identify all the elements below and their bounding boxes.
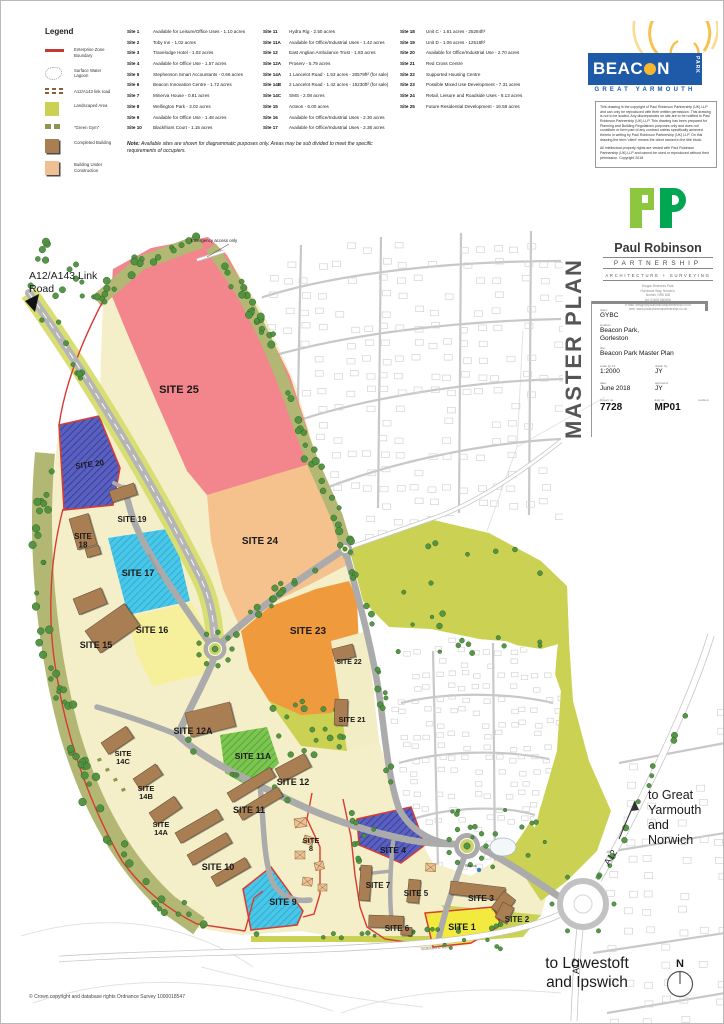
legend-item-label: A12/A143 link road [74,88,110,95]
beacon-park-logo: BEACN PARK GREAT YARMOUTH [586,21,718,101]
map-label: A12/A143 Link [29,270,98,282]
site-list-row: Site 10Blackfriars Court - 1.15 acres [127,125,259,136]
site-id: Site 12A [263,61,289,66]
site-desc: Available for Office/Industrial Uses - 1… [289,40,397,45]
legend-item-label: Landscaped Area [74,102,107,109]
map-label: SITE 19 [118,515,147,524]
map-label: SITE 23 [290,626,327,637]
legend-item-label: Surface Water Lagoon [74,67,101,80]
map-label: SITE 7 [366,881,391,890]
map-label: SITE14C [115,749,132,766]
beacon-great-yarmouth: GREAT YARMOUTH [588,87,702,93]
site-desc: SMS - 2.08 acres [289,93,397,98]
site-desc: Available for Office Use - 1.48 acres [153,115,259,120]
title-block: client: GYBC location: Beacon Park, Gorl… [591,301,718,437]
site-id: Site 21 [400,61,426,66]
legend-swatch-green-gym [45,124,67,129]
site-id: Site 5 [127,72,153,77]
map-label: SITE 15 [80,640,113,650]
site-list-column-3: Site 18Unit C - 1.61 acres - 25284ft²Sit… [400,29,552,115]
legend-swatch-lagoon [45,67,67,80]
site-id: Site 20 [400,50,426,55]
map-label: and Ipswich [546,974,628,991]
map-label: SITE 10 [202,862,235,872]
map-label: Beacon [465,864,477,868]
site-list-row: Site 14CSMS - 2.08 acres [263,93,397,104]
beacon-logo-box: BEACN PARK [588,53,702,85]
site-desc: Available for Office/Industrial Uses - 2… [289,125,397,130]
drawing-side-title: MASTER PLAN [561,295,585,439]
site-desc: Wellington Park - 3.02 acres [153,104,259,109]
title-block-bar [592,301,708,304]
site-list-row: Site 23Possible Mixed Use Development - … [400,82,552,93]
sun-icon [644,63,656,75]
site-list-row: Site 24Retail, Leisure and Roadside Uses… [400,93,552,104]
site-list-row: Site 12East Anglian Ambulance Trust - 1.… [263,50,397,61]
legend-swatch-construction [45,161,67,175]
map-label: SITE 2 [505,915,530,924]
site-list-row: Site 16Available for Office/Industrial U… [263,115,397,126]
map-label: SITE 4 [380,845,406,855]
site-id: Site 24 [400,93,426,98]
beacon-park-vertical: PARK [694,56,700,74]
site-id: Site 15 [263,104,289,109]
prp-tagline: ARCHITECTURE + SURVEYING [603,271,713,281]
map-label: SITE 21 [338,715,365,724]
site-desc: Unit C - 1.61 acres - 25284ft² [426,29,552,34]
date-value: June 2018 [600,385,655,393]
map-label: to Great [648,788,694,802]
site-list-row: Site 15Acteon - 6.00 acres [263,104,397,115]
os-copyright: © Crown copyright and database rights Or… [29,994,185,1000]
scale-value: 1:2000 [600,368,655,376]
site-list-row: Site 19Unit D - 1.06 acres - 12518ft² [400,40,552,51]
legend-item-label: Enterprise Zone Boundary [74,46,105,59]
site-list-note: Note: Available sites are shown for diag… [127,141,387,155]
site-list-row: Site 6Beacon Innovation Centre - 1.72 ac… [127,82,259,93]
site-desc: Retail, Leisure and Roadside Uses - 8.13… [426,93,552,98]
legend-item: Building Under Construction [45,161,195,175]
legend-item-label: Building Under Construction [74,161,102,174]
map-label: SITE 11 [233,805,265,815]
site-id: Site 14A [263,72,289,77]
site-desc: Future Residential Development - 16.58 a… [426,104,552,109]
site-desc: Travelodge Hotel - 1.02 acres [153,50,259,55]
site-list-row: Site 8Wellington Park - 3.02 acres [127,104,259,115]
prp-monogram-icon [597,185,719,233]
site-id: Site 11A [263,40,289,45]
site-list-column-1: Site 1Available for Leisure/Office Uses … [127,29,259,136]
site-list-row: Site 4Available for Office Use - 1.57 ac… [127,61,259,72]
map-label: SITE14A [153,820,170,837]
site-id: Site 19 [400,40,426,45]
site-id: Site 4 [127,61,153,66]
title-value: Beacon Park Master Plan [600,350,718,358]
legend-swatch-landscaped [45,102,67,116]
site-desc: Blackfriars Court - 1.15 acres [153,125,259,130]
map-label: SITE 17 [122,568,155,578]
site-desc: Possible Mixed Use Development - 7.31 ac… [426,82,552,87]
map-label: SITE 9 [269,897,297,907]
site-id: Site 6 [127,82,153,87]
beacon-name-1: BEAC [593,59,643,79]
legend-swatch-link-road [45,88,67,94]
map-label: Yarmouth [648,803,701,817]
master-plan-sheet: SITE 25SITE 24SITE 23SITE 20SITE 17SITE … [0,0,724,1024]
site-list-row: Site 11Hydra Rig - 2.50 acres [263,29,397,40]
site-id: Site 12 [263,50,289,55]
site-list-row: Site 11AAvailable for Office/Industrial … [263,40,397,51]
site-desc: East Anglian Ambulance Trust - 1.83 acre… [289,50,397,55]
site-desc: Minerva House - 0.81 acres [153,93,259,98]
site-list-row: Site 2Toby Inn - 1.02 acres [127,40,259,51]
site-id: Site 7 [127,93,153,98]
site-id: Site 9 [127,115,153,120]
map-label: SITE 16 [136,625,169,635]
site-list-row: Site 22Supported Housing Centre [400,72,552,83]
site-desc: Proserv - 5.79 acres [289,61,397,66]
map-label: SITE 11A [235,751,271,761]
beacon-name-2: N [657,59,670,79]
site-id: Site 23 [400,82,426,87]
legend-item-label: "Green Gym" [74,124,99,131]
site-desc: 2 Lancelot Road - 1.42 acres - 15230ft² … [289,82,397,87]
map-label: Norwich [648,833,693,847]
map-label: SITE 5 [404,889,429,898]
approved-value: JY [655,385,699,393]
site-list-row: Site 12AProserv - 5.79 acres [263,61,397,72]
copyright-notice-box: This drawing is the copyright of Paul Ro… [595,101,717,168]
site-id: Site 22 [400,72,426,77]
map-label: SITE 3 [468,893,494,903]
site-desc: Toby Inn - 1.02 acres [153,40,259,45]
site-list-row: Site 20Available for Office/Industrial U… [400,50,552,61]
site-id: Site 11 [263,29,289,34]
site-desc: Supported Housing Centre [426,72,552,77]
project-no-value: 7728 [600,402,655,413]
paul-robinson-partnership-logo: Paul Robinson PARTNERSHIP ARCHITECTURE +… [597,185,719,312]
site-id: Site 2 [127,40,153,45]
map-label: SITE14B [138,784,155,801]
drawn-by-value: JY [655,368,699,376]
map-label: Emergency access only [191,238,238,243]
map-label: SITE 12A [173,726,213,736]
site-desc: Available for Office Use - 1.57 acres [153,61,259,66]
site-desc: Stephenson Smart Accountants - 0.66 acre… [153,72,259,77]
site-id: Site 17 [263,125,289,130]
site-desc: Red Cross Centre [426,61,552,66]
legend-swatch-ez-line [45,46,67,52]
legend-swatch-completed [45,139,67,153]
note-bold: Note: [127,141,140,147]
legend-item-label: Completed Building [74,139,111,146]
site-id: Site 16 [263,115,289,120]
map-label: SITE 12 [277,777,310,787]
site-desc: Hydra Rig - 2.50 acres [289,29,397,34]
note-text: Available sites are shown for diagrammat… [127,141,373,154]
location-value-2: Gorleston [600,335,718,343]
site-list-column-2: Site 11Hydra Rig - 2.50 acresSite 11AAva… [263,29,397,136]
client-value: GYBC [600,312,718,320]
map-label: N [676,958,684,970]
site-desc: Available for Office/Industrial Use - 2.… [426,50,552,55]
map-label: SITE 6 [385,924,410,933]
prp-name: Paul Robinson [597,241,719,255]
site-id: Site 14C [263,93,289,98]
site-list-row: Site 9Available for Office Use - 1.48 ac… [127,115,259,126]
prp-partnership: PARTNERSHIP [603,257,713,269]
site-id: Site 10 [127,125,153,130]
dwg-no-value: MP01 [655,402,699,413]
site-id: Site 14B [263,82,289,87]
site-list-row: Site 5Stephenson Smart Accountants - 0.6… [127,72,259,83]
site-list-row: Site 18Unit C - 1.61 acres - 25284ft² [400,29,552,40]
site-id: Site 18 [400,29,426,34]
site-desc: Available for Office/Industrial Uses - 2… [289,115,397,120]
site-id: Site 25 [400,104,426,109]
site-desc: Acteon - 6.00 acres [289,104,397,109]
site-id: Site 1 [127,29,153,34]
location-value-1: Beacon Park, [600,327,718,335]
map-label: SITE 24 [242,536,279,547]
site-list-row: Site 7Minerva House - 0.81 acres [127,93,259,104]
map-label: and [648,818,669,832]
site-list-row: Site 17Available for Office/Industrial U… [263,125,397,136]
map-label: to Lowestoft [545,955,629,972]
site-list-row: Site 21Red Cross Centre [400,61,552,72]
copyright-paragraph-1: This drawing is the copyright of Paul Ro… [600,105,712,142]
site-list-row: Site 3Travelodge Hotel - 1.02 acres [127,50,259,61]
copyright-paragraph-2: All intellectual property rights are ves… [600,146,712,160]
site-desc: 1 Lancelot Road - 1.53 acres - 20579ft² … [289,72,397,77]
site-list-row: Site 25Future Residential Development - … [400,104,552,115]
site-id: Site 3 [127,50,153,55]
map-label: SITE 1 [448,922,476,932]
site-list-row: Site 14A1 Lancelot Road - 1.53 acres - 2… [263,72,397,83]
map-label: A12 [571,958,581,974]
map-label: SITE 25 [159,384,199,396]
site-list-row: Site 1Available for Leisure/Office Uses … [127,29,259,40]
site-desc: Available for Leisure/Office Uses - 1.10… [153,29,259,34]
site-id: Site 8 [127,104,153,109]
beacon-marker-icon [477,868,481,872]
map-label: SITE 22 [336,659,361,666]
map-label: Road [29,283,54,295]
site-desc: Unit D - 1.06 acres - 12518ft² [426,40,552,45]
site-list-row: Site 14B2 Lancelot Road - 1.42 acres - 1… [263,82,397,93]
site-desc: Beacon Innovation Centre - 1.72 acres [153,82,259,87]
